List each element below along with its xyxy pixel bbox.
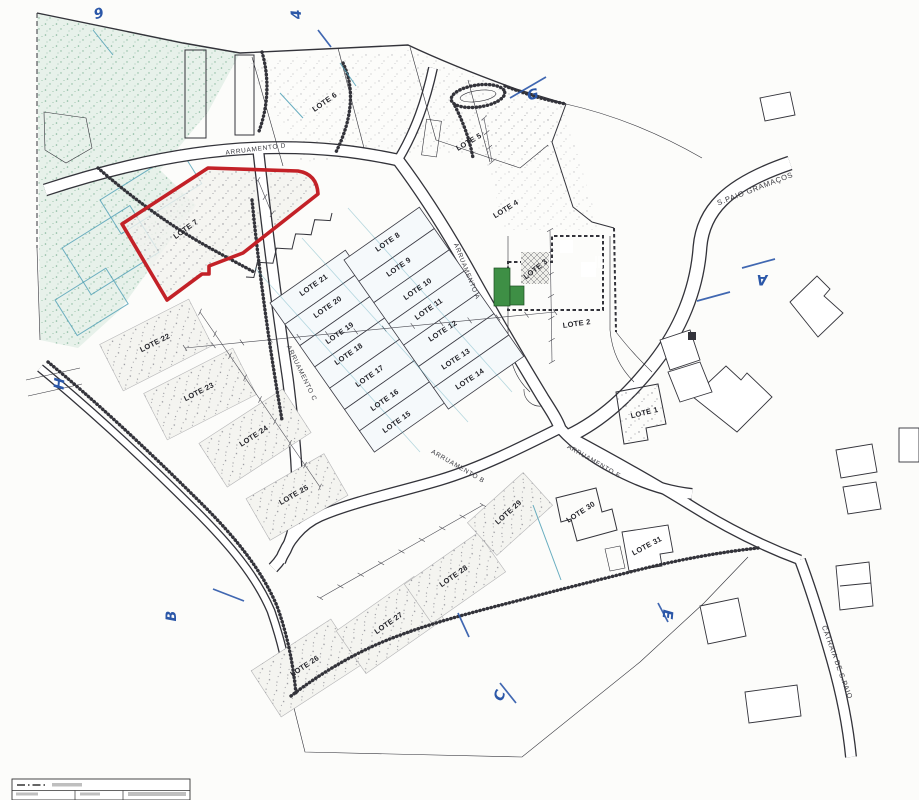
survey-marker-e: E bbox=[659, 609, 676, 620]
site-plan-page: LOTE 1LOTE 2LOTE 3LOTE 4LOTE 5LOTE 6LOTE… bbox=[0, 0, 919, 800]
lote30-building bbox=[556, 488, 617, 541]
stairs-glyph bbox=[596, 256, 602, 268]
survey-marker-a: A bbox=[757, 271, 769, 287]
green-landscape-strip bbox=[510, 286, 524, 305]
legend-box bbox=[12, 779, 190, 800]
survey-marker-c: C bbox=[491, 687, 510, 703]
survey-marker-9: 9 bbox=[92, 5, 106, 23]
survey-marker-b: B bbox=[164, 611, 180, 622]
lot-label-lote-30: LOTE 30 bbox=[565, 499, 597, 524]
east-boundary-dashed bbox=[614, 228, 616, 332]
survey-marker-4: 4 bbox=[289, 9, 306, 21]
lote3-building-complex bbox=[494, 236, 603, 310]
green-landscape-strip bbox=[494, 268, 510, 306]
lot-label-lote-2: LOTE 2 bbox=[562, 317, 591, 330]
site-plan-svg: LOTE 1LOTE 2LOTE 3LOTE 4LOTE 5LOTE 6LOTE… bbox=[0, 0, 919, 800]
survey-marker-h: H bbox=[52, 377, 69, 390]
